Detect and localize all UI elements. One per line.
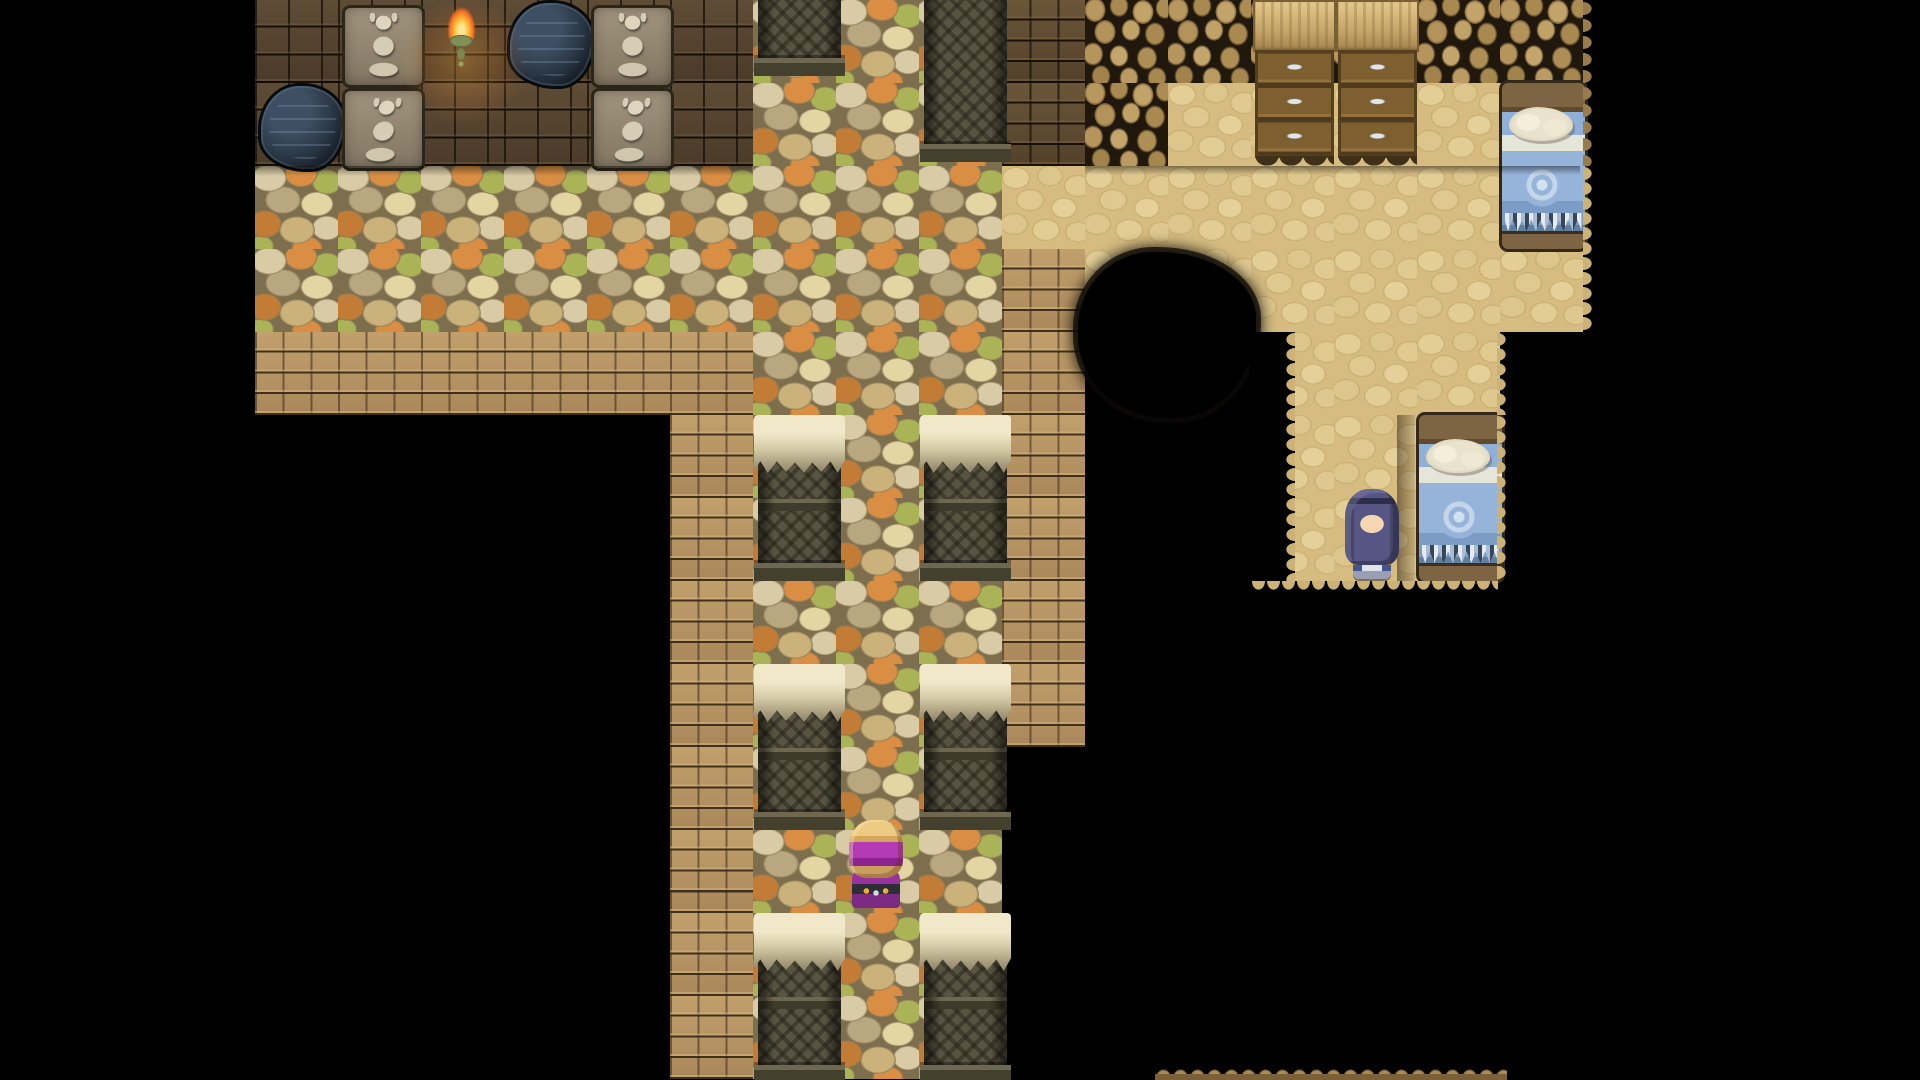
dirt-floor-tile [1002, 166, 1085, 249]
brick-path-tile [1002, 664, 1085, 747]
pebble-floor-tile [421, 166, 504, 249]
pebble-floor-tile [836, 581, 919, 664]
dark-wall-tile [255, 0, 338, 83]
ruined-pillar [758, 415, 841, 581]
wall-hole [261, 86, 344, 169]
ruined-pillar [924, 664, 1007, 830]
pebble-floor-tile [836, 332, 919, 415]
pebble-floor-tile [421, 249, 504, 332]
bed-blue-blanket [1419, 415, 1502, 581]
dirt-floor-tile [1500, 249, 1583, 332]
ruined-pillar [924, 415, 1007, 581]
turban-adventurer[interactable] [846, 820, 906, 908]
pebble-floor-tile [836, 166, 919, 249]
dirt-floor-tile [1334, 166, 1417, 249]
wall-hole [510, 3, 593, 86]
bed-blue-blanket [1502, 83, 1585, 249]
pebble-floor-tile [836, 996, 919, 1079]
pebble-floor-tile [753, 332, 836, 415]
dirt-torn-edge [1583, 166, 1597, 332]
pebble-floor-tile [670, 249, 753, 332]
pebble-floor-tile [836, 747, 919, 830]
dirt-floor-tile [1334, 415, 1417, 498]
pebble-floor-tile [255, 249, 338, 332]
rock-wall-tile [1500, 0, 1583, 83]
crouching-statue [591, 88, 674, 171]
pebble-floor-tile [670, 166, 753, 249]
pebble-floor-tile [753, 249, 836, 332]
dirt-floor-tile [1168, 249, 1251, 332]
dirt-floor-tile [1251, 166, 1334, 249]
crouching-statue [342, 88, 425, 171]
dirt-floor-tile [1168, 166, 1251, 249]
rock-wall-tile [1417, 0, 1500, 83]
dirt-floor-tile [1417, 83, 1500, 166]
rock-wall-tile [1085, 0, 1168, 83]
pebble-floor-tile [255, 166, 338, 249]
dark-wall-tile [670, 83, 753, 166]
brick-path-tile [670, 498, 753, 581]
ruined-pillar [758, 913, 841, 1080]
pebble-floor-tile [836, 0, 919, 83]
brick-path-tile [670, 747, 753, 830]
brick-path-tile [421, 332, 504, 415]
brick-path-tile [670, 332, 753, 415]
dirt-floor-tile [1334, 332, 1417, 415]
dirt-floor-tile [1251, 498, 1334, 581]
sitting-statue [591, 5, 674, 88]
pebble-floor-tile [338, 166, 421, 249]
pebble-floor-tile [836, 664, 919, 747]
brick-path-tile [1002, 249, 1085, 332]
pebble-floor-tile [919, 249, 1002, 332]
dirt-floor-tile [1085, 166, 1168, 249]
dirt-floor-tile [1417, 332, 1500, 415]
pebble-floor-tile [504, 166, 587, 249]
dirt-floor-tile [1417, 166, 1500, 249]
interior-brick-tile [1002, 83, 1085, 166]
brick-path-tile [670, 664, 753, 747]
brick-path-tile [670, 996, 753, 1079]
brick-path-tile [670, 830, 753, 913]
sitting-statue [342, 5, 425, 88]
ruined-pillar-base [924, 0, 1007, 162]
pebble-floor-tile [919, 830, 1002, 913]
brick-path-tile [1002, 498, 1085, 581]
pebble-floor-tile [836, 83, 919, 166]
brick-path-tile [504, 332, 587, 415]
pebble-floor-tile [338, 249, 421, 332]
brick-path-tile [670, 581, 753, 664]
brick-path-tile [338, 332, 421, 415]
rock-wall-tile [1085, 83, 1168, 166]
pebble-floor-tile [753, 830, 836, 913]
brick-path-tile [255, 332, 338, 415]
ruined-pillar [924, 913, 1007, 1080]
pebble-floor-tile [587, 249, 670, 332]
brick-path-tile [1002, 581, 1085, 664]
pebble-floor-tile [919, 166, 1002, 249]
pebble-floor-tile [919, 332, 1002, 415]
pebble-floor-tile [587, 166, 670, 249]
ruined-pillar-base [758, 0, 841, 76]
dirt-floor-tile [1334, 249, 1417, 332]
dirt-torn-edge [1251, 581, 1498, 595]
dark-wall-tile [421, 83, 504, 166]
brick-path-tile [670, 913, 753, 996]
pebble-floor-tile [836, 913, 919, 996]
wooden-dresser [1336, 0, 1419, 166]
rock-torn-edge [1583, 0, 1599, 166]
dirt-floor-tile [1251, 249, 1334, 332]
brick-path-tile [1002, 415, 1085, 498]
pebble-floor-tile [836, 415, 919, 498]
dark-wall-tile [670, 0, 753, 83]
interior-brick-tile [1002, 0, 1085, 83]
purple-haired-girl[interactable] [1343, 489, 1401, 579]
dirt-floor-tile [1168, 83, 1251, 166]
ruined-pillar [758, 664, 841, 830]
brick-path-tile [670, 415, 753, 498]
brick-path-tile [1002, 332, 1085, 415]
pebble-floor-tile [753, 83, 836, 166]
dresser-drawers [1338, 50, 1417, 158]
brick-path-tile [587, 332, 670, 415]
dirt-floor-tile [1251, 415, 1334, 498]
bottom-rock-ledge [1155, 1060, 1507, 1080]
rock-wall-tile [1168, 0, 1251, 83]
dark-wall-tile [504, 83, 587, 166]
pebble-floor-tile [753, 166, 836, 249]
dresser-drawers [1255, 50, 1334, 158]
dirt-floor-tile [1085, 249, 1168, 332]
pebble-floor-tile [836, 498, 919, 581]
game-viewport [0, 0, 1920, 1080]
wooden-dresser [1253, 0, 1336, 166]
dirt-floor-tile [1417, 249, 1500, 332]
pebble-floor-tile [836, 249, 919, 332]
pebble-floor-tile [919, 581, 1002, 664]
dirt-floor-tile [1251, 332, 1334, 415]
pebble-floor-tile [504, 249, 587, 332]
pebble-floor-tile [753, 581, 836, 664]
